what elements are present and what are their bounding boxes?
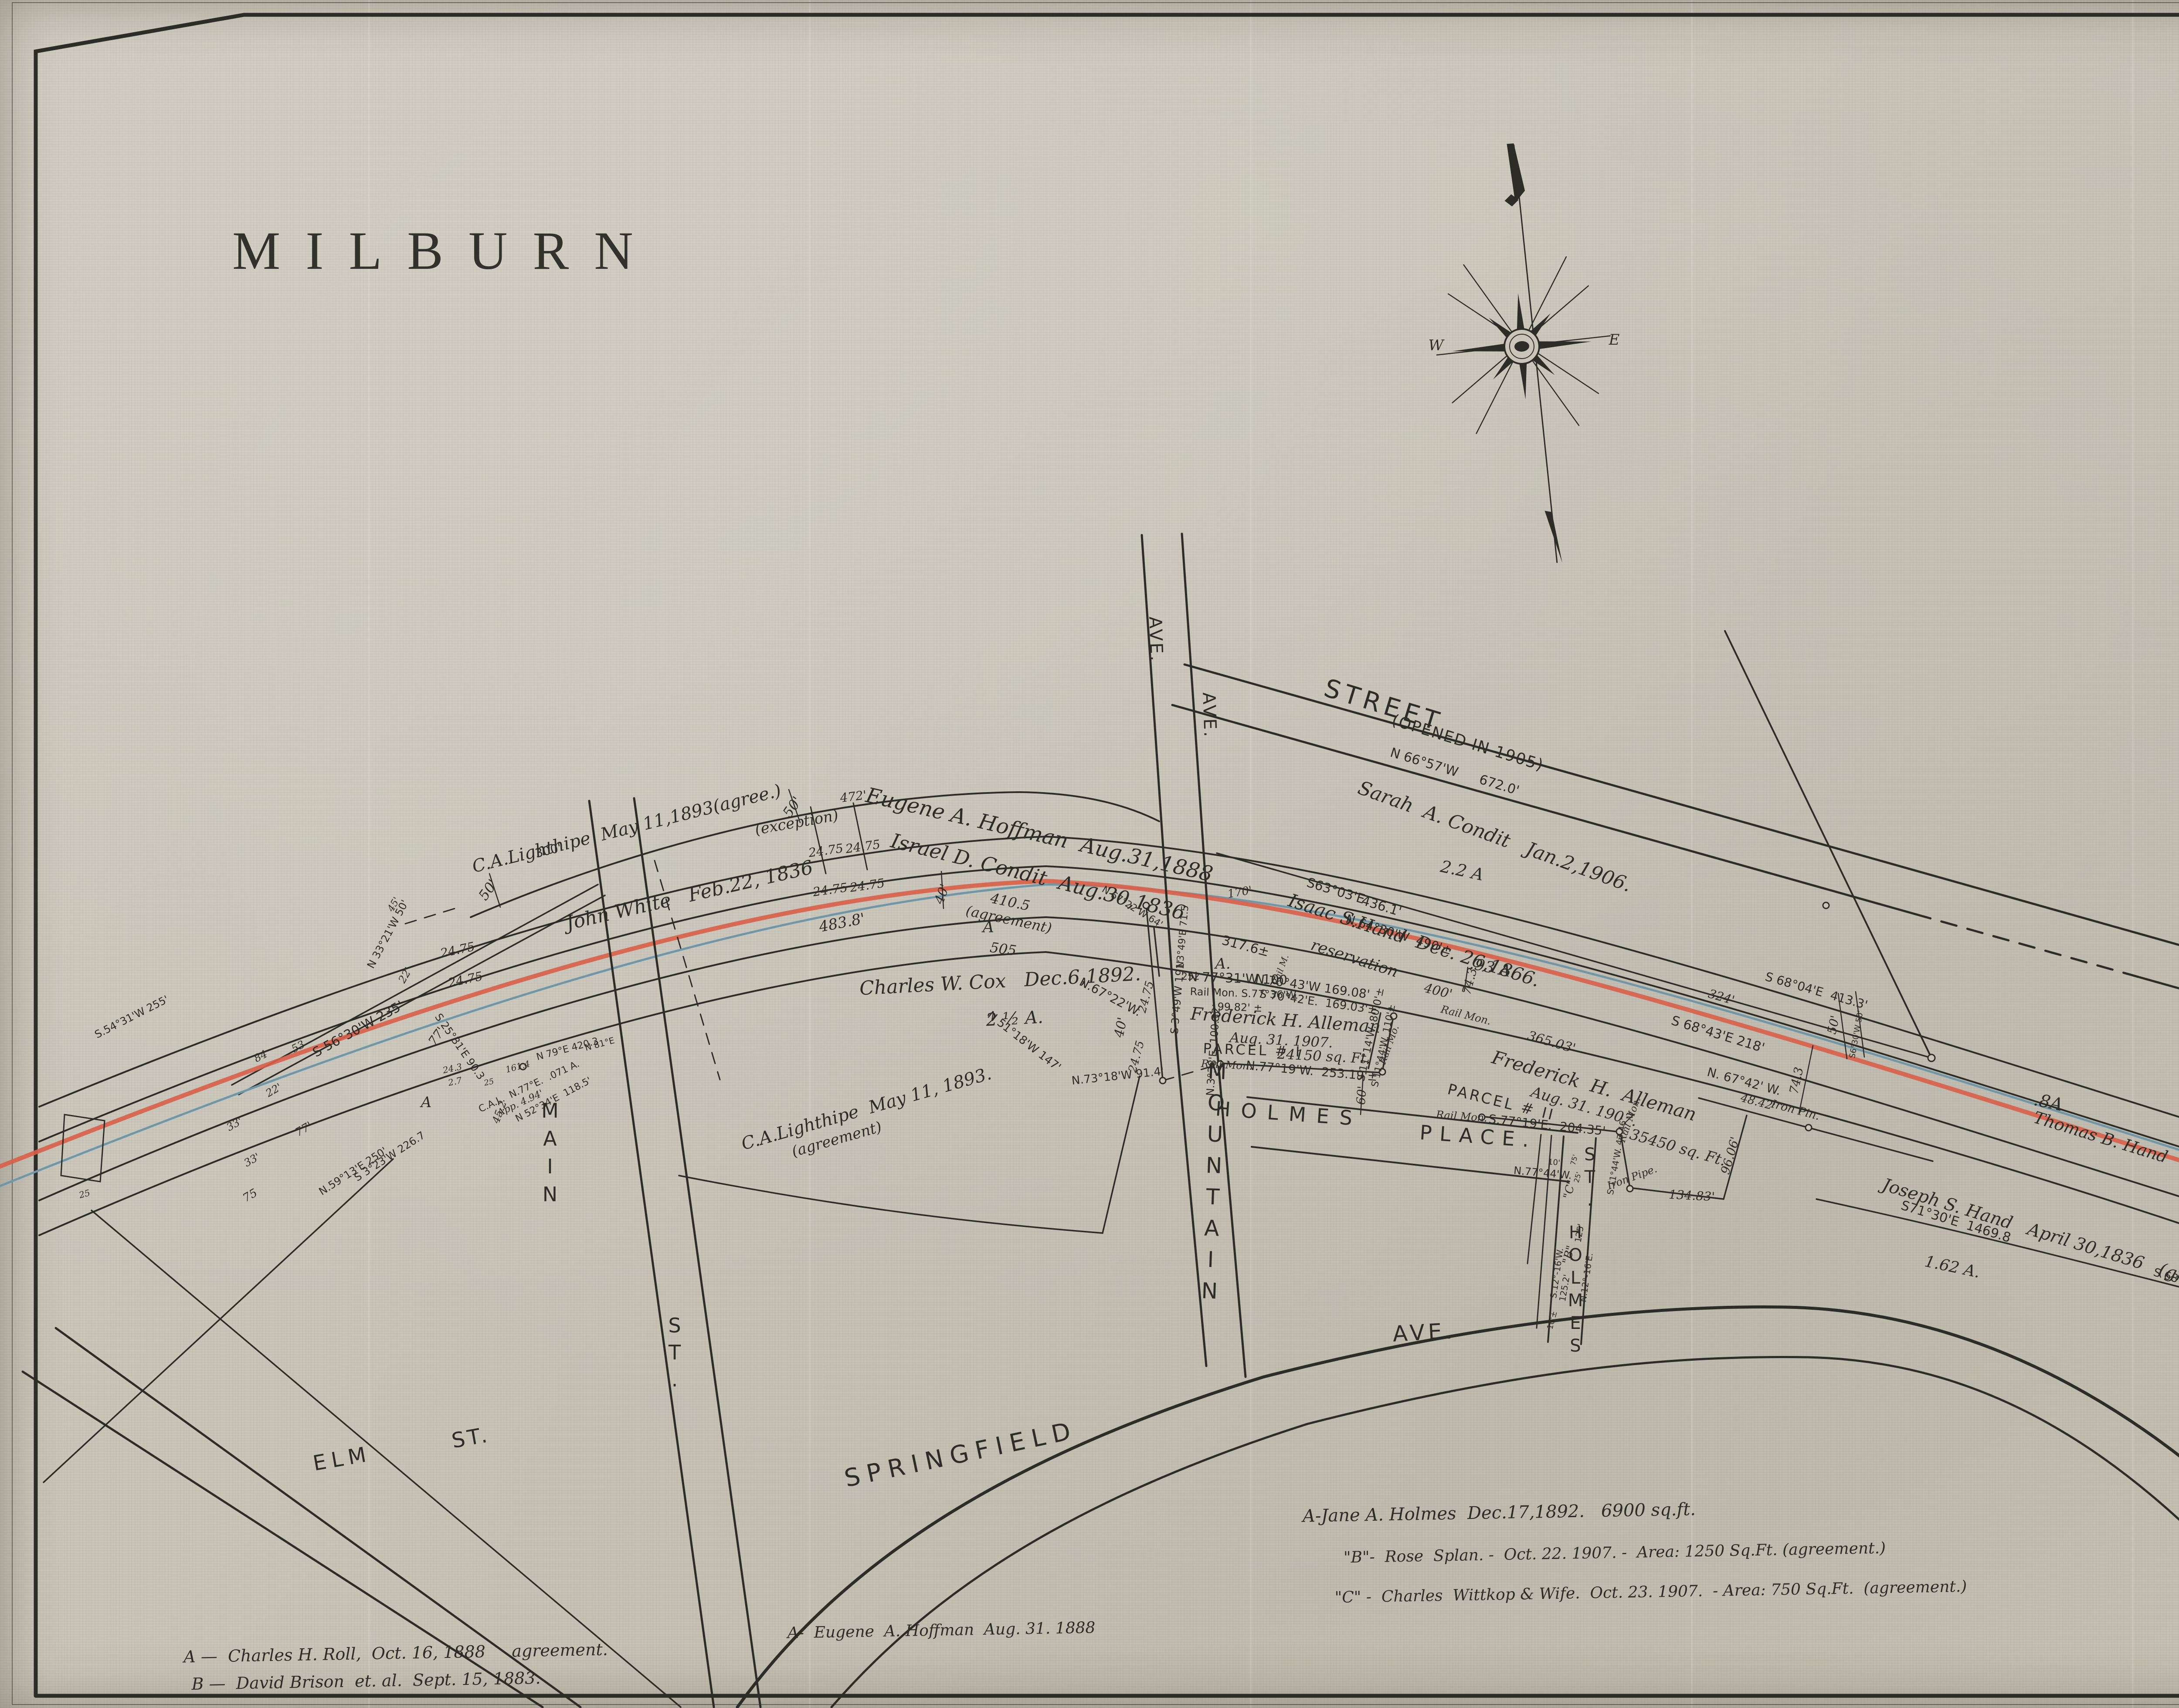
holmes-lot-line-2 xyxy=(1527,1135,1541,1264)
map-label: E xyxy=(1609,331,1620,349)
compass-rose-icon xyxy=(1422,138,1626,571)
bl-diagonal-1 xyxy=(92,1210,681,1707)
vert-715 xyxy=(1154,928,1159,976)
map-title: MILBURN xyxy=(232,220,755,282)
map-label: 60' xyxy=(1354,1085,1370,1105)
map-label: AVE. xyxy=(1392,1318,1456,1346)
main-st-west xyxy=(589,801,714,1707)
springfield-ave-south xyxy=(832,1357,2179,1707)
cox-east-line xyxy=(1103,1076,1140,1233)
map-label: 134.83' xyxy=(1668,1187,1715,1204)
map-label: W xyxy=(1429,337,1444,354)
cox-south-line xyxy=(679,1176,1103,1233)
map-label: A xyxy=(421,1094,432,1111)
streets xyxy=(23,534,2179,1707)
bl-diagonal-2 xyxy=(44,1159,393,1482)
map-label: 10' xyxy=(1548,1157,1561,1167)
map-label: MAIN xyxy=(538,1099,562,1210)
street-1905-south-east xyxy=(2140,977,2179,1057)
map-label: ST. xyxy=(663,1314,686,1395)
map-label: ST. xyxy=(1580,1145,1600,1213)
property-lines xyxy=(44,790,2179,1707)
map-label: A xyxy=(983,918,994,936)
map-label: AVE. xyxy=(1145,616,1167,663)
map-label: AVE. xyxy=(1198,692,1220,739)
map-label: 2 ½ A. xyxy=(985,1007,1043,1030)
street-1905-south xyxy=(1172,705,1915,914)
